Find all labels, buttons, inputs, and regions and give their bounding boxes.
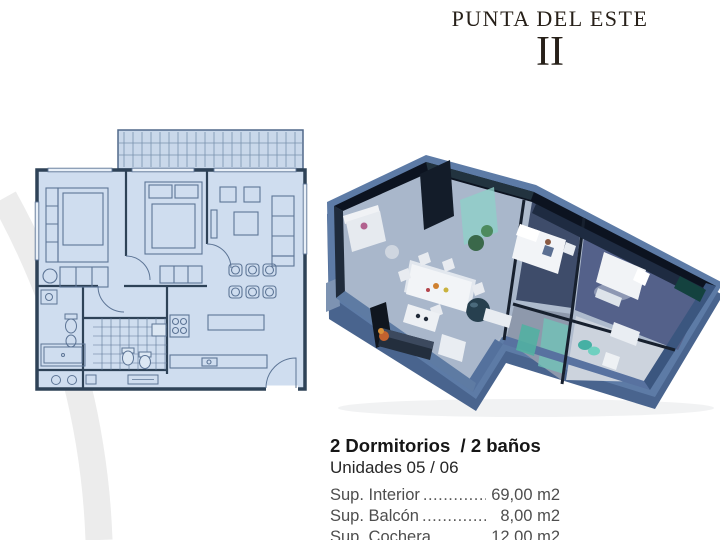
project-title: PUNTA DEL ESTE II: [425, 6, 675, 72]
area-table: Sup. Interior ..........................…: [330, 485, 560, 540]
entry-opening: [266, 386, 298, 393]
area-value: 12,00 m2: [486, 527, 560, 540]
unit-details: 2 Dormitorios / 2 baños Unidades 05 / 06…: [330, 434, 560, 540]
area-row-garage: Sup. Cochera ...........................…: [330, 527, 560, 540]
area-row-interior: Sup. Interior ..........................…: [330, 485, 560, 506]
floor-plan-3d-render: [326, 140, 720, 424]
area-label: Sup. Balcón: [330, 506, 422, 527]
leader-dots: ....................................: [422, 506, 486, 527]
leader-dots: ....................................: [434, 527, 486, 540]
area-label: Sup. Cochera: [330, 527, 434, 540]
area-value: 8,00 m2: [486, 506, 560, 527]
project-phase: II: [425, 32, 675, 72]
flyer-page: PUNTA DEL ESTE II: [0, 0, 720, 540]
leader-dots: ....................................: [423, 485, 486, 506]
apartment-outline: [37, 170, 305, 389]
area-label: Sup. Interior: [330, 485, 423, 506]
area-value: 69,00 m2: [486, 485, 560, 506]
area-row-balcony: Sup. Balcón ............................…: [330, 506, 560, 527]
unit-numbers: Unidades 05 / 06: [330, 457, 560, 479]
floor-plan-2d: [32, 124, 310, 396]
balcony: [118, 130, 303, 169]
unit-type-heading: 2 Dormitorios / 2 baños: [330, 434, 560, 457]
